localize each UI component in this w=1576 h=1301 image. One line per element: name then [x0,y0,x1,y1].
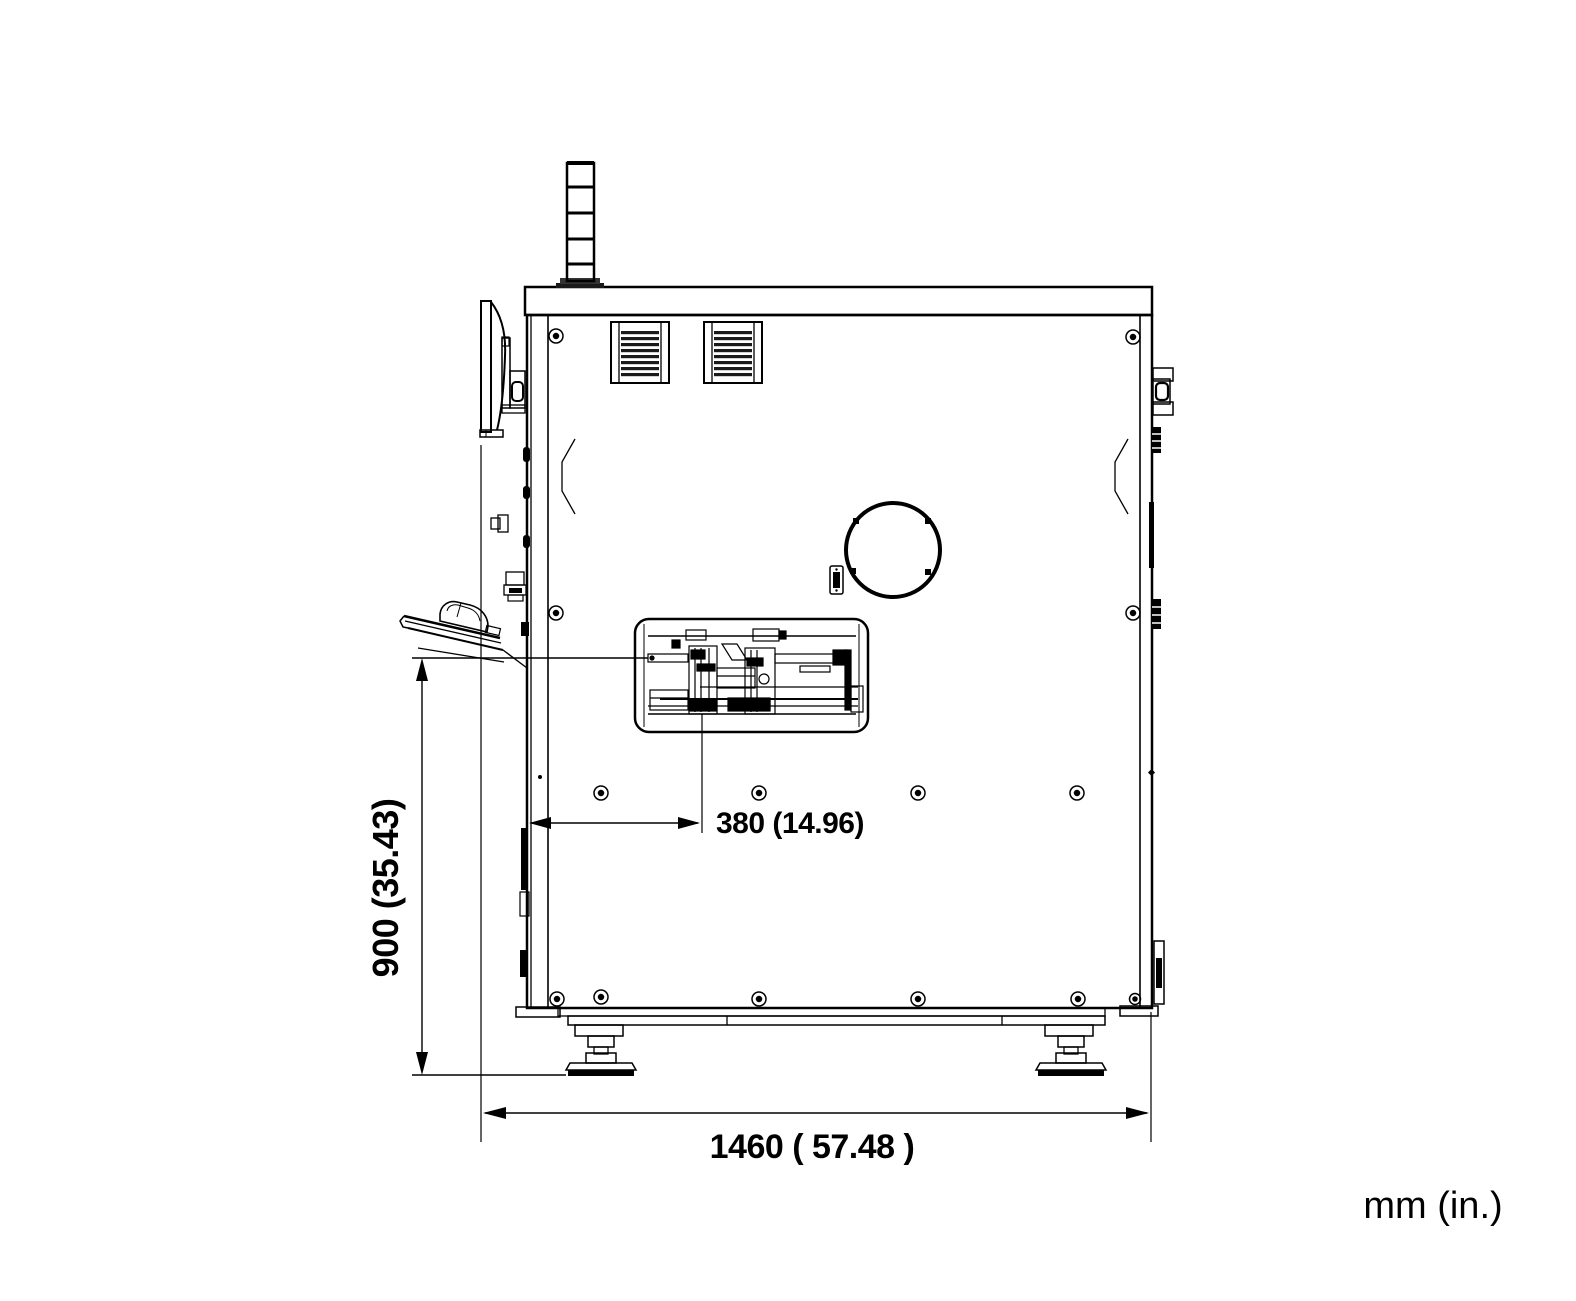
handle-recess-right [1115,439,1128,514]
top-cap [525,287,1152,315]
handle-recess-left [562,439,575,514]
units-note: mm (in.) [1363,1185,1502,1227]
arrowhead-up [416,658,428,681]
arrowhead-right [678,817,700,829]
arrowhead-right [1126,1107,1149,1119]
arrowhead-down [416,1052,428,1075]
rear-hinge-top [1152,427,1161,453]
dimension-height: 900 (35.43) [365,658,648,1075]
leveling-foot-left [566,1025,636,1076]
rear-latch [1153,368,1173,415]
dimension-label-width: 1460 ( 57.48 ) [710,1128,915,1166]
technical-drawing-page: 900 (35.43) 380 (14.96) 1460 ( 57.48 ) m… [0,0,1576,1301]
front-latch [504,572,526,601]
dimension-width: 1460 ( 57.48 ) [481,445,1151,1166]
front-knob [491,515,508,532]
mechanism-detail [648,629,863,714]
arrowhead-left [529,817,551,829]
machine-side-view-drawing: 900 (35.43) 380 (14.96) 1460 ( 57.48 ) m… [0,0,1576,1301]
front-door-hardware [491,447,530,977]
signal-tower [556,163,604,288]
monitor-assembly [480,301,525,437]
vent-grille-right [704,322,762,383]
mechanism-window [635,619,868,732]
dimension-label-offset: 380 (14.96) [716,807,864,840]
small-connector [830,566,843,594]
dimension-label-height: 900 (35.43) [365,799,406,978]
machine-cabinet [491,163,1173,1008]
rear-seal-strip [1149,502,1154,568]
rear-lower-strip [1154,941,1164,1004]
leveling-foot-right [1036,1025,1106,1076]
fan-opening [846,503,940,597]
vent-grille-left [611,322,669,383]
arrowhead-left [483,1107,506,1119]
rear-hinge-bottom [1152,599,1161,629]
